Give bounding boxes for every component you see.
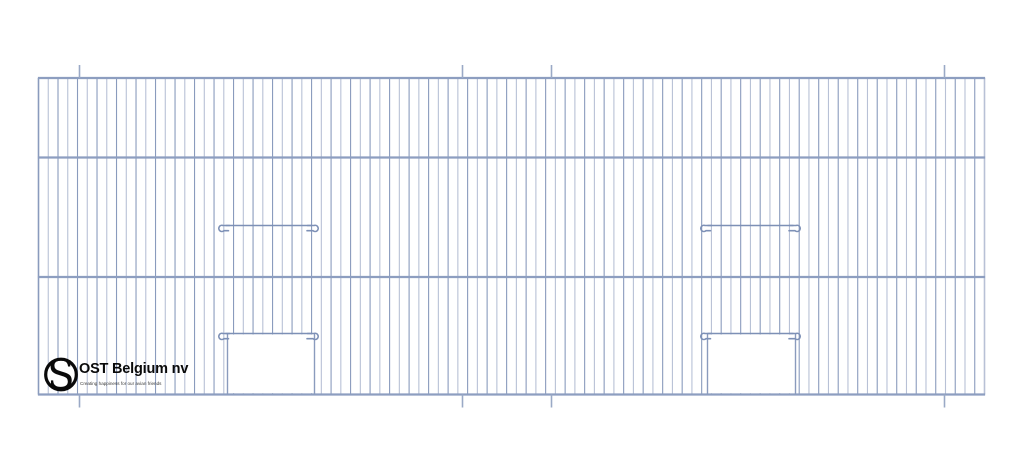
brand-tagline: Creating happiness for our avian friends (80, 382, 161, 387)
brand-name: OST Belgium nv (79, 361, 188, 378)
drawing-page: S OST Belgium nv Creating happiness for … (0, 0, 1024, 473)
logo-letter: S (47, 353, 74, 399)
cage-front-drawing (0, 0, 1024, 473)
